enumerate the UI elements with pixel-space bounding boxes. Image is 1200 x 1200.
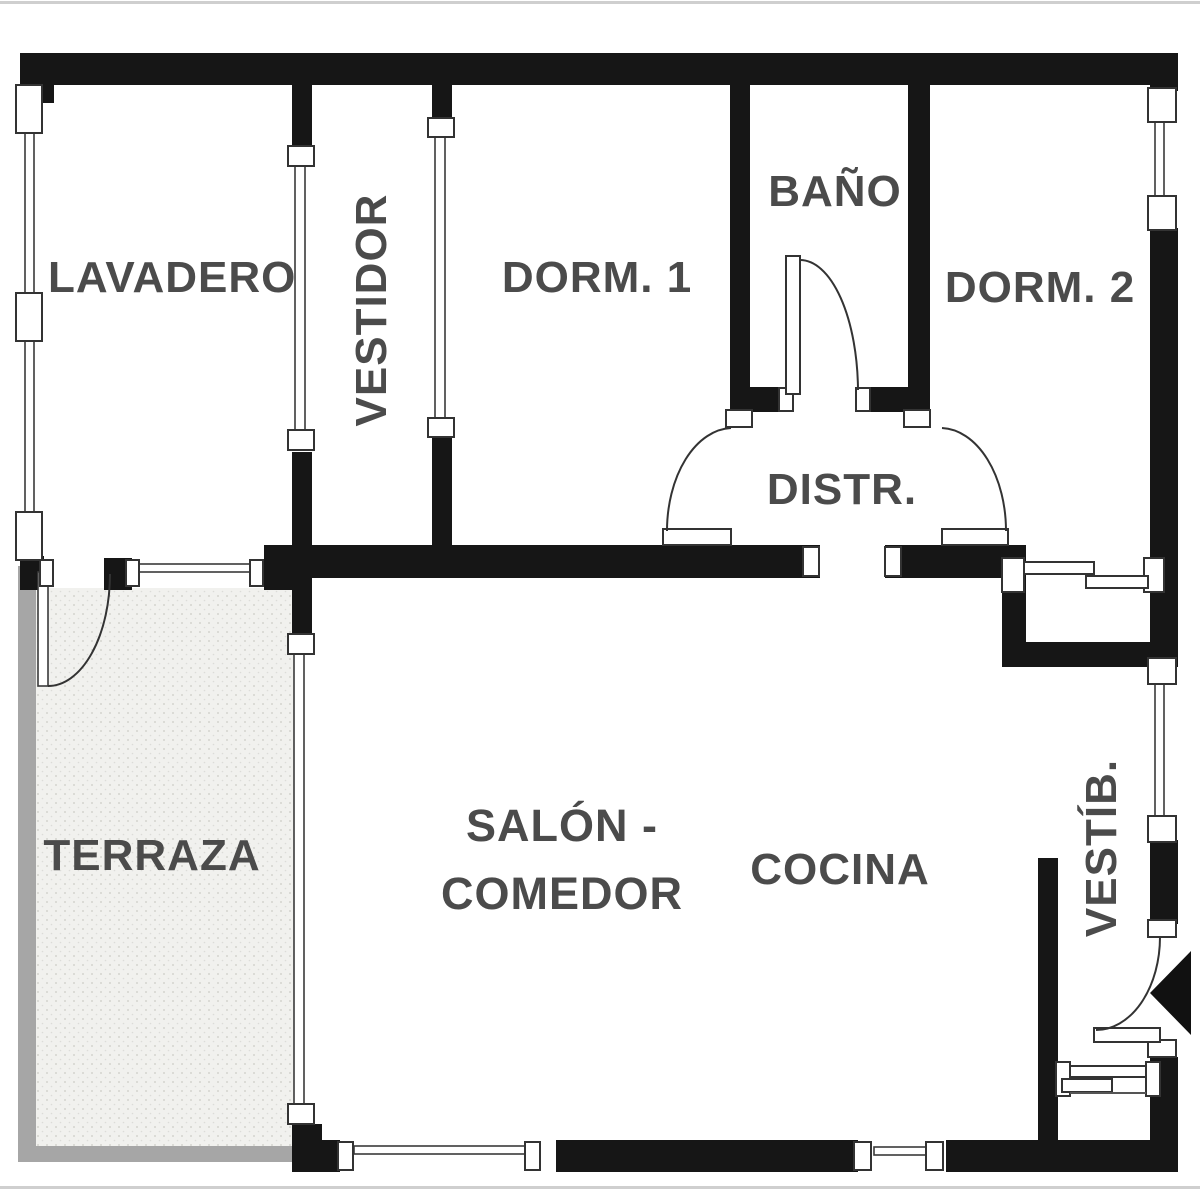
room-label-dorm1: DORM. 1 [497, 253, 697, 303]
room-label-vestibulo: VESTÍB. [1077, 698, 1127, 998]
room-label-distr: DISTR. [752, 465, 932, 515]
dorm1-door-arc [667, 428, 731, 531]
floor-plan: LAVADERO VESTIDOR DORM. 1 BAÑO DORM. 2 D… [0, 0, 1200, 1200]
dorm2-door-leaf [942, 529, 1008, 545]
room-label-lavadero: LAVADERO [48, 253, 248, 303]
entrance-arrow-icon [1150, 951, 1191, 1035]
bano-door-arc [800, 260, 858, 390]
dorm2-door-arc [942, 428, 1006, 531]
room-label-salon-line1: SALÓN - [412, 792, 712, 860]
room-label-terraza: TERRAZA [42, 831, 262, 881]
room-label-bano: BAÑO [745, 167, 925, 217]
room-label-vestidor: VESTIDOR [347, 130, 397, 490]
floor-plan-drawing [0, 0, 1200, 1200]
room-label-dorm2: DORM. 2 [940, 263, 1140, 313]
bano-door-leaf [786, 256, 800, 394]
room-label-cocina: COCINA [740, 845, 940, 895]
room-label-salon-comedor: SALÓN - COMEDOR [412, 792, 712, 928]
dorm1-door-leaf [663, 529, 731, 545]
room-label-salon-line2: COMEDOR [412, 860, 712, 928]
